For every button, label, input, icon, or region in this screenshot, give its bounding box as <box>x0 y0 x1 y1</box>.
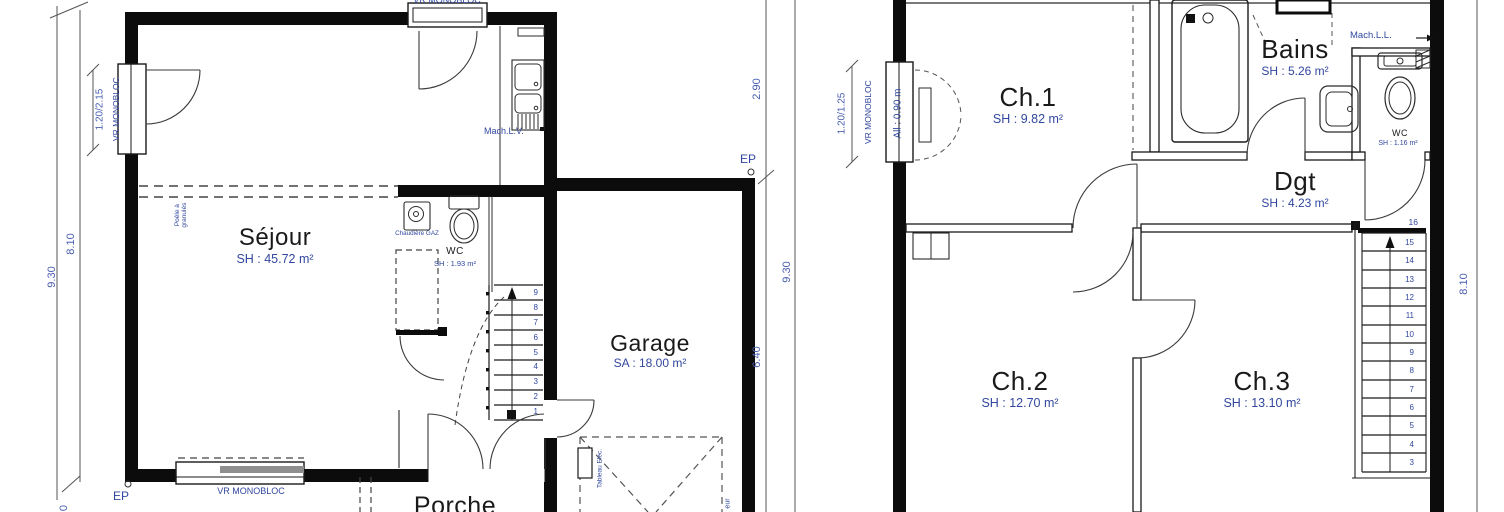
wall-wc-bottom <box>1352 152 1365 160</box>
floor-plan-drawing: VR MONOBLOC Séjour SH : 45.72 m² Poêle à… <box>0 0 1504 512</box>
room-garage-area: SA : 18.00 m² <box>595 356 705 370</box>
washbasin-inner <box>1326 92 1352 126</box>
mach-ll-label: Mach.L.L. <box>1350 30 1416 41</box>
allege-label: All : 0.90 m <box>893 83 904 145</box>
door-swing-arc <box>1247 98 1305 156</box>
garage-partial-label: eur <box>725 489 732 512</box>
wall-bains-bottom <box>1305 152 1352 160</box>
door-swing-arc <box>557 400 594 437</box>
boiler-symbol <box>409 207 424 222</box>
entry-door-top-leaf <box>413 8 482 22</box>
bathtub-inner <box>1181 5 1239 133</box>
garage-wall <box>557 178 755 191</box>
wall-ch1-bains <box>1150 0 1159 152</box>
vr-monobloc-top-label: VR MONOBLOC <box>404 0 490 5</box>
vr-monobloc-label-ff: VR MONOBLOC <box>863 82 873 144</box>
toilet-cistern <box>449 196 479 209</box>
shutter-box <box>220 466 304 473</box>
door-opening <box>544 400 557 438</box>
toilet-bowl <box>1389 82 1411 114</box>
room-porche: Porche <box>405 492 505 512</box>
room-wc-ff: WC <box>1375 128 1425 138</box>
ep-marker <box>748 169 754 175</box>
room-ch1: Ch.1 <box>968 82 1088 113</box>
faucet <box>534 106 538 110</box>
door-swing-arc <box>1365 160 1425 220</box>
wall <box>544 482 557 512</box>
room-sejour-area: SH : 45.72 m² <box>215 252 335 266</box>
poele-label: Poêle à granulés <box>174 192 188 238</box>
kitchen-sink <box>515 64 541 90</box>
wall-ch2-ch3 <box>1133 228 1141 300</box>
faucet <box>534 82 538 86</box>
wall-post <box>438 327 447 336</box>
toilet-flush <box>1397 58 1403 64</box>
door-swing-arc <box>1073 232 1133 292</box>
dim-right-outer: 9.30 <box>781 257 793 287</box>
room-ch1-area: SH : 9.82 m² <box>968 112 1088 126</box>
window-left-size-label: 1.20/2.15 <box>95 80 106 140</box>
ep-marker-label: EP <box>740 152 756 166</box>
kitchen-shelf <box>518 28 544 36</box>
dim-left-inner: 8.10 <box>65 229 77 259</box>
room-wc-gf: WC <box>430 246 480 257</box>
room-dgt: Dgt <box>1235 166 1355 197</box>
wall-ch2-ch3 <box>1133 358 1141 512</box>
dim-left-outer: 9.30 <box>46 262 58 292</box>
marker-dot <box>540 127 544 131</box>
wall-ch3-top <box>1141 224 1352 232</box>
chaudiere-label: Chaudière GAZ <box>394 231 440 238</box>
wall <box>1430 0 1444 512</box>
wall-interior <box>398 185 557 197</box>
room-sejour: Séjour <box>215 224 335 252</box>
room-garage: Garage <box>595 330 705 357</box>
ep-marker-label: EP <box>113 489 129 503</box>
electrical-panel <box>578 448 592 478</box>
room-wc-ff-area: SH : 1.16 m² <box>1366 140 1430 147</box>
room-ch3: Ch.3 <box>1202 366 1322 397</box>
ground-floor-plan <box>50 0 795 512</box>
window-size-label-ff: 1.20/1.25 <box>837 84 848 144</box>
bathtub-drain <box>1203 13 1213 23</box>
room-ch2: Ch.2 <box>960 366 1080 397</box>
dim-right-top: 2.90 <box>751 74 763 104</box>
tableau-elec-label: Tableau Elec. <box>597 439 604 499</box>
stairs-step-numbers-ff: 1514 1312 1110 98 76 54 3 <box>1362 234 1414 472</box>
dim-right-bottom: 6.40 <box>751 342 763 372</box>
room-bains-area: SH : 5.26 m² <box>1235 64 1355 78</box>
stairs-top-wall <box>1358 228 1426 233</box>
dim-bottom-fragment: 0 <box>58 493 70 512</box>
door-swing-arc <box>1137 300 1195 358</box>
porch-dashed-edge <box>360 477 371 512</box>
dim-right-ff: 8.10 <box>1458 269 1470 299</box>
wc-partition <box>489 196 492 292</box>
mach-lv-label: Mach.L.V. <box>484 126 538 136</box>
room-bains: Bains <box>1235 34 1355 65</box>
dim-bracket <box>846 60 858 168</box>
door-swing-arc <box>1073 164 1137 228</box>
room-wc-gf-area: SH : 1.93 m² <box>423 259 487 268</box>
door-swing-arc <box>146 70 200 124</box>
vr-monobloc-left-label: VR MONOBLOC <box>111 79 121 141</box>
door-swing-arc <box>419 31 477 89</box>
room-dgt-area: SH : 4.23 m² <box>1235 196 1355 210</box>
wall-bains-bottom <box>1132 152 1247 160</box>
dim-line-right <box>766 0 795 512</box>
room-ch3-area: SH : 13.10 m² <box>1202 396 1322 410</box>
door-swing-arc <box>400 336 444 380</box>
room-ch2-area: SH : 12.70 m² <box>960 396 1080 410</box>
toilet-bowl <box>454 213 474 239</box>
bathtub-faucet <box>1186 14 1195 23</box>
window-top <box>1277 0 1330 13</box>
wall <box>125 12 557 25</box>
kitchen-sink <box>515 94 541 113</box>
vr-monobloc-bottom-label: VR MONOBLOC <box>196 486 306 496</box>
wall-wc-bottom <box>1425 152 1430 160</box>
boiler-symbol <box>414 212 419 217</box>
stairs-step-16-partial: 16 <box>1402 217 1418 227</box>
door-swing-arc <box>490 414 545 469</box>
wall-stub <box>396 330 438 335</box>
window-leaf <box>919 88 931 142</box>
stairs-step-numbers-gf: 98 76 54 32 1 <box>494 286 538 419</box>
wall-ch1-ch2 <box>906 224 1072 232</box>
window-left <box>118 64 146 154</box>
door-opening <box>428 469 545 482</box>
